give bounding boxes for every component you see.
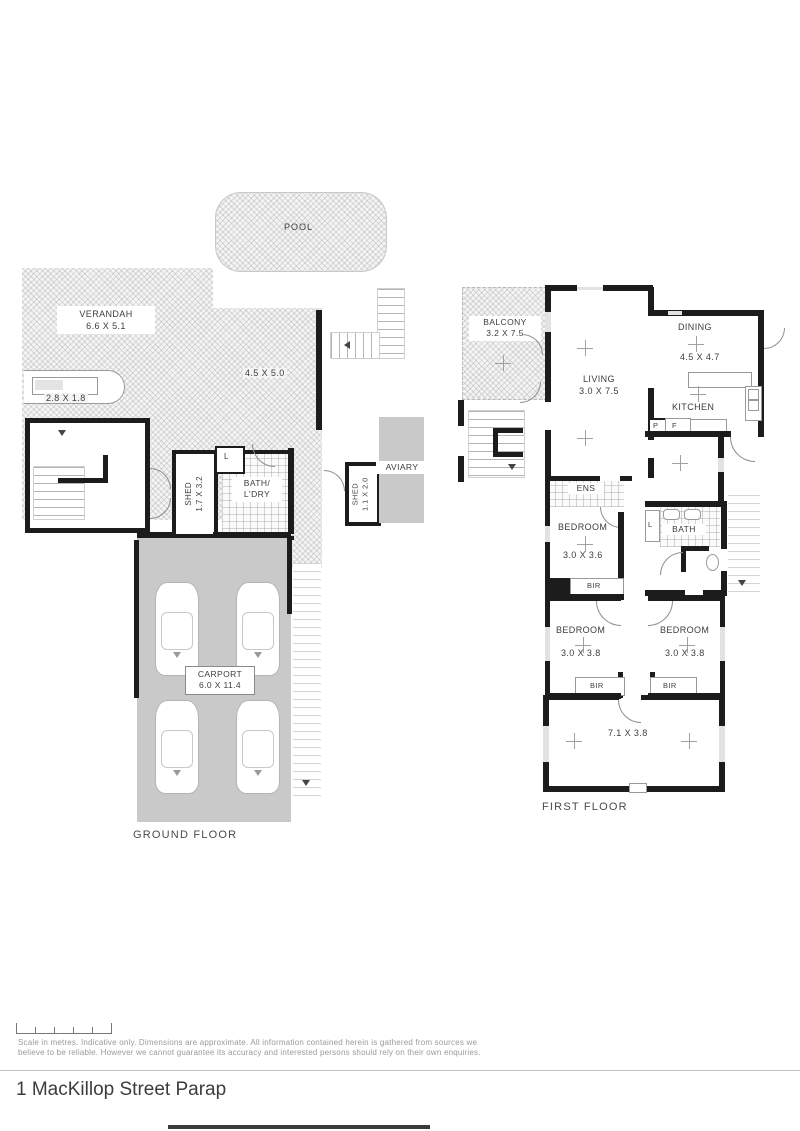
stairs-direction-arrow xyxy=(344,341,350,349)
bed1-dim-label: 3.0 X 3.6 xyxy=(563,550,603,560)
ensuite-label: ENS xyxy=(568,483,604,494)
bath-ldry-label: BATH/ L'DRY xyxy=(232,477,282,502)
dining-cross xyxy=(688,336,704,352)
stair-room-treads xyxy=(33,466,85,520)
car-roof xyxy=(242,612,274,650)
bath-ldry-line2: L'DRY xyxy=(234,489,280,500)
ensuite-top-wall-right xyxy=(620,476,632,481)
living-label: LIVING 3.0 X 7.5 xyxy=(558,372,640,398)
carport-dim: 6.0 X 11.4 xyxy=(189,680,251,691)
bed1-label: BEDROOM xyxy=(558,522,607,532)
hall-right-window xyxy=(718,458,724,472)
ground-floor-label: GROUND FLOOR xyxy=(133,829,237,841)
car-1 xyxy=(155,582,199,676)
verandah-name: VERANDAH xyxy=(61,308,151,320)
rumpus-bottom-wall-right xyxy=(645,786,725,792)
ff-stair-wall-1 xyxy=(458,400,464,426)
aviary-label: AVIARY xyxy=(376,461,428,474)
laundry-linen-label: L xyxy=(224,452,229,461)
ensuite-left-wall xyxy=(545,476,550,510)
carport-east-wall xyxy=(287,538,292,614)
deck-dim-label: 4.5 X 5.0 xyxy=(243,368,287,378)
ruler-tick xyxy=(73,1027,74,1033)
dining-top-wall xyxy=(648,310,764,316)
ff-stair-arrow xyxy=(508,464,516,470)
dining-label: DINING xyxy=(678,322,712,332)
bed2-left-wall-2 xyxy=(545,661,550,695)
bath-right-wall-1 xyxy=(721,501,727,549)
page-title: 1 MacKillop Street Parap xyxy=(16,1079,226,1101)
bed2-left-window xyxy=(545,627,550,661)
dining-door-arc xyxy=(764,328,785,349)
living-top-window xyxy=(577,287,603,290)
bed1-right-wall xyxy=(618,512,624,580)
ramp-grate xyxy=(35,380,63,390)
rumpus-left-wall-1 xyxy=(543,695,549,726)
bath-basin-2 xyxy=(684,509,701,520)
living-right-wall-3 xyxy=(648,458,654,478)
living-cross-2 xyxy=(577,430,593,446)
car-roof xyxy=(242,730,274,768)
pool-label: POOL xyxy=(284,222,313,232)
scale-ruler xyxy=(16,1021,112,1034)
bottom-edge-line xyxy=(168,1125,430,1129)
car-mark xyxy=(254,770,262,776)
rumpus-door-arc xyxy=(618,700,641,723)
bir2-label: BIR xyxy=(590,681,604,690)
carport-name: CARPORT xyxy=(189,669,251,680)
bed3-right-wall-2 xyxy=(720,661,725,695)
shed2-dim: 1.1 X 2.0 xyxy=(361,477,371,511)
carport-top-wall-left xyxy=(137,532,175,538)
ruler-tick xyxy=(54,1027,55,1033)
kitchen-label: KITCHEN xyxy=(672,402,714,412)
floor-plan-page: POOL VERANDAH 6.6 X 5.1 4.5 X 5.0 2.8 X … xyxy=(0,0,800,1131)
hall-door-arc-left xyxy=(596,601,621,626)
stair-room-arrow xyxy=(58,430,66,436)
footer-divider xyxy=(0,1070,800,1071)
rumpus-top-wall-right xyxy=(641,695,725,700)
carport-stairs-arrow xyxy=(302,780,310,786)
bed3-right-wall-1 xyxy=(720,601,725,627)
bir1-solid-block xyxy=(548,578,570,594)
living-cross-1 xyxy=(577,340,593,356)
living-top-wall-right xyxy=(603,285,653,291)
bath-basin-1 xyxy=(663,509,680,520)
bath-ldry-line1: BATH/ xyxy=(234,478,280,489)
carport-west-wall xyxy=(134,540,139,698)
disclaimer-line-2: believe to be reliable. However we canno… xyxy=(18,1048,481,1057)
disclaimer-line-1: Scale in metres. Indicative only. Dimens… xyxy=(18,1038,477,1047)
verandah-label: VERANDAH 6.6 X 5.1 xyxy=(57,306,155,334)
shed2-label: SHED 1.1 X 2.0 xyxy=(343,462,379,526)
bath-ldry-east-wall xyxy=(288,448,294,534)
bed1-left-window xyxy=(545,526,550,542)
bir1-label: BIR xyxy=(587,581,601,590)
rumpus-cross-1 xyxy=(566,733,582,749)
rumpus-right-window xyxy=(719,726,725,762)
kitchen-sink-1 xyxy=(748,389,759,400)
rumpus-dim-label: 7.1 X 3.8 xyxy=(608,728,648,738)
exterior-stairs-horizontal xyxy=(330,332,380,359)
bed3-label: BEDROOM xyxy=(660,625,709,635)
shed1-label: SHED 1.7 X 3.2 xyxy=(172,450,218,538)
bed2-dim-label: 3.0 X 3.8 xyxy=(561,648,601,658)
linen-label: L xyxy=(648,520,653,529)
aviary-text: AVIARY xyxy=(378,462,426,473)
car-mark xyxy=(173,652,181,658)
shed1-dim: 1.7 X 3.2 xyxy=(195,476,206,512)
ff-stair-wall-2 xyxy=(458,456,464,482)
first-floor-label: FIRST FLOOR xyxy=(542,801,628,813)
car-roof xyxy=(161,730,193,768)
shed1-name: SHED xyxy=(184,476,195,512)
balcony-name: BALCONY xyxy=(472,317,538,328)
dining-dim-label: 4.5 X 4.7 xyxy=(680,352,720,362)
ruler-tick xyxy=(111,1023,112,1033)
carport-side-stairs xyxy=(293,563,321,798)
rumpus-bottom-wall-left xyxy=(543,786,629,792)
car-2 xyxy=(236,582,280,676)
rumpus-bottom-window-mark xyxy=(629,783,647,793)
bath-door-arc xyxy=(660,552,683,575)
rumpus-right-wall-1 xyxy=(719,695,725,726)
kitchen-door-arc xyxy=(730,437,755,462)
shed2-door-arc xyxy=(324,470,345,491)
bath-text: BATH xyxy=(664,524,704,535)
hall-door-arc-right xyxy=(648,601,673,626)
car-mark xyxy=(254,652,262,658)
bed1-left-wall-1 xyxy=(545,510,550,526)
bed3-right-window xyxy=(720,627,725,661)
living-left-window xyxy=(545,312,551,332)
fridge-label: F xyxy=(672,421,677,430)
stair-partition-h xyxy=(58,478,108,483)
ramp-dim-label: 2.8 X 1.8 xyxy=(44,393,88,403)
rumpus-top-wall-left xyxy=(543,695,619,700)
living-left-wall-2 xyxy=(545,332,551,402)
verandah-dim: 6.6 X 5.1 xyxy=(61,320,151,332)
rumpus-left-window xyxy=(543,726,549,762)
laundry-linen-closet xyxy=(215,446,245,474)
car-roof xyxy=(161,612,193,650)
dining-top-window xyxy=(668,311,682,315)
car-3 xyxy=(155,700,199,794)
kitchen-cross xyxy=(690,386,706,402)
carport-label: CARPORT 6.0 X 11.4 xyxy=(185,666,255,695)
verandah-east-wall xyxy=(316,310,322,430)
bed2-label: BEDROOM xyxy=(556,625,605,635)
hall-cross xyxy=(672,455,688,471)
bath-label: BATH xyxy=(662,524,706,535)
bath-top-wall xyxy=(645,501,727,507)
ruler-tick xyxy=(16,1023,17,1033)
ensuite-top-wall-left xyxy=(545,476,600,481)
ensuite-text: ENS xyxy=(570,483,602,494)
rumpus-cross-2 xyxy=(681,733,697,749)
exterior-stairs-vertical xyxy=(377,288,405,359)
ruler-tick xyxy=(35,1027,36,1033)
ff-stair-partition-h2 xyxy=(493,452,523,457)
ruler-tick xyxy=(92,1027,93,1033)
carport-top-wall-right xyxy=(213,532,291,538)
living-dim: 3.0 X 7.5 xyxy=(560,385,638,397)
bir3-label: BIR xyxy=(663,681,677,690)
toilet xyxy=(706,554,719,571)
living-left-wall-3 xyxy=(545,430,551,478)
shed2-name: SHED xyxy=(351,477,361,511)
stair-partition-v xyxy=(103,455,108,483)
car-4 xyxy=(236,700,280,794)
bed2-left-wall-1 xyxy=(545,601,550,627)
living-left-wall-1 xyxy=(545,287,551,312)
balcony-cross xyxy=(495,355,511,371)
kitchen-sink-2 xyxy=(748,400,759,411)
living-name: LIVING xyxy=(560,373,638,385)
bed3-dim-label: 3.0 X 3.8 xyxy=(665,648,705,658)
pantry-label: P xyxy=(653,421,658,430)
car-mark xyxy=(173,770,181,776)
ff-exterior-stairs-arrow xyxy=(738,580,746,586)
bath-partition-h xyxy=(681,546,709,551)
pool-area xyxy=(215,192,387,272)
